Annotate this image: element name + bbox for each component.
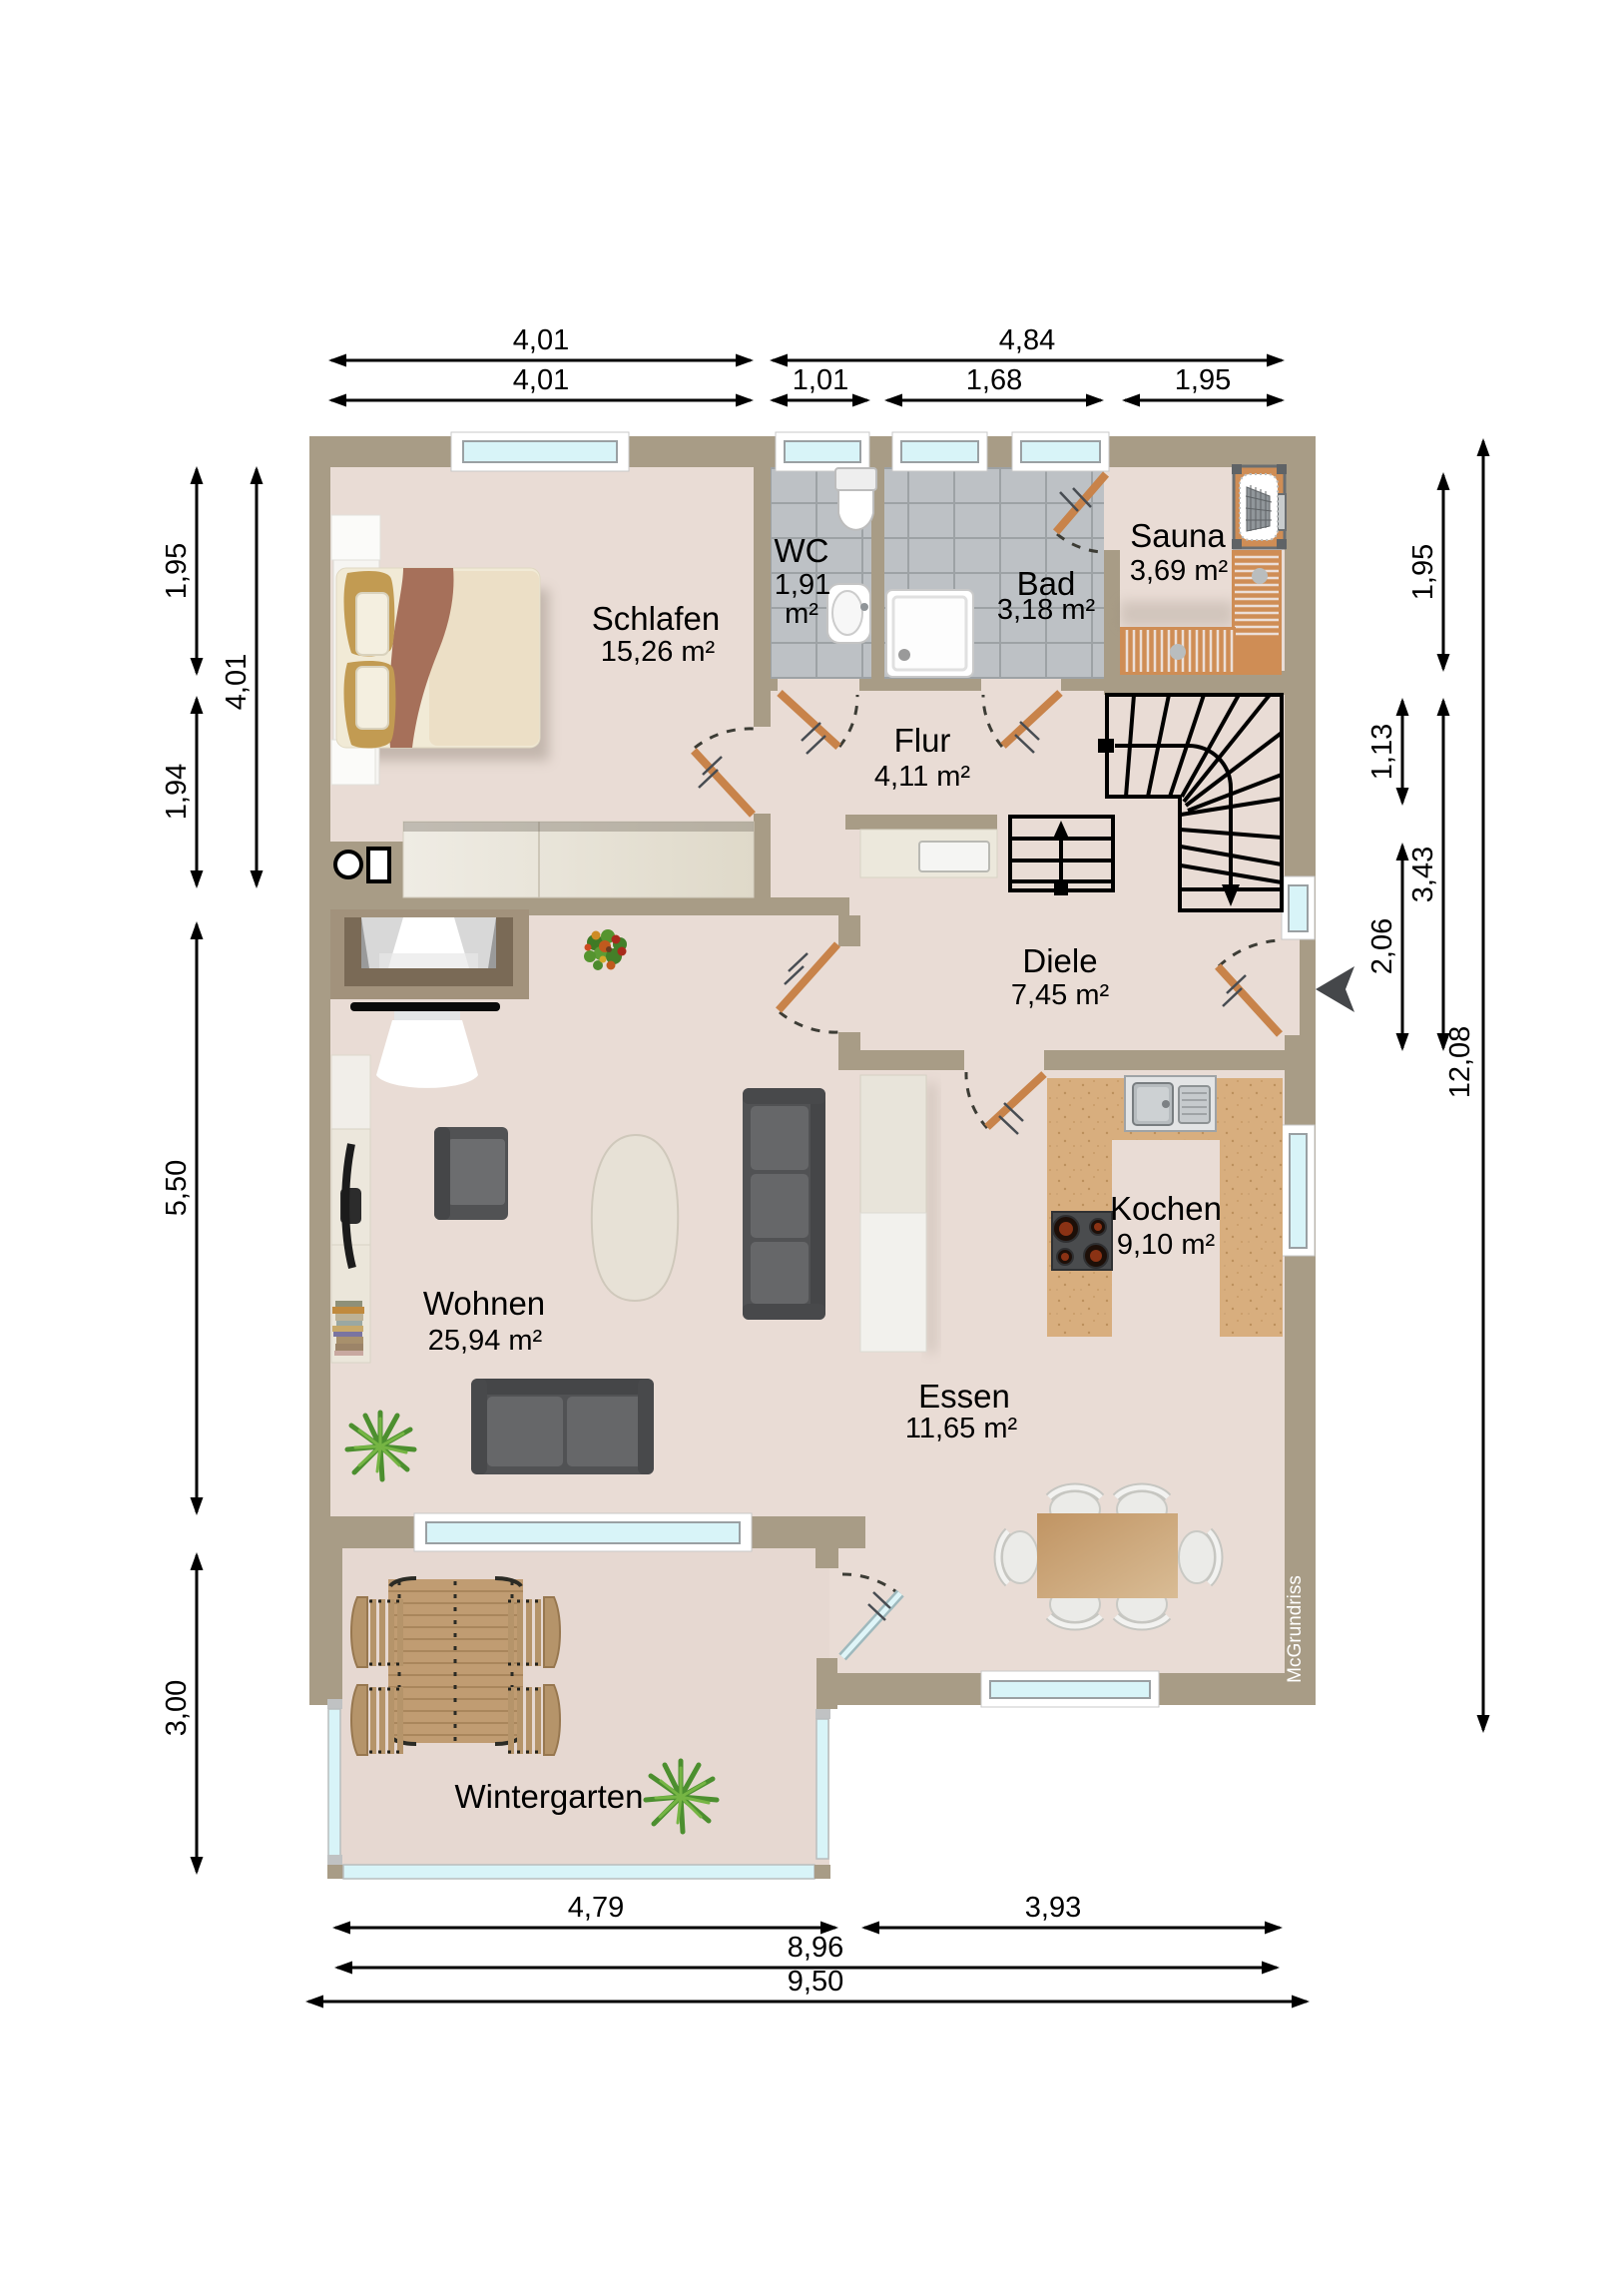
svg-text:Flur: Flur bbox=[894, 722, 951, 759]
svg-text:Sauna: Sauna bbox=[1130, 517, 1226, 554]
svg-text:11,65 m²: 11,65 m² bbox=[905, 1413, 1018, 1444]
svg-text:3,43: 3,43 bbox=[1407, 847, 1439, 902]
svg-text:1,94: 1,94 bbox=[161, 764, 193, 820]
svg-text:m²: m² bbox=[785, 598, 818, 630]
svg-text:3,93: 3,93 bbox=[1025, 1892, 1081, 1924]
svg-text:4,01: 4,01 bbox=[221, 654, 253, 710]
svg-text:McGrundriss: McGrundriss bbox=[1285, 1575, 1306, 1683]
svg-text:Kochen: Kochen bbox=[1110, 1190, 1222, 1227]
svg-text:9,50: 9,50 bbox=[788, 1966, 843, 1998]
svg-text:5,50: 5,50 bbox=[161, 1160, 193, 1216]
svg-text:9,10 m²: 9,10 m² bbox=[1117, 1229, 1216, 1261]
svg-text:4,01: 4,01 bbox=[513, 324, 569, 356]
svg-text:1,95: 1,95 bbox=[161, 543, 193, 599]
svg-text:Wohnen: Wohnen bbox=[423, 1285, 545, 1322]
svg-text:WC: WC bbox=[775, 532, 829, 569]
svg-text:Wintergarten: Wintergarten bbox=[455, 1778, 644, 1815]
svg-text:3,18 m²: 3,18 m² bbox=[997, 594, 1096, 626]
svg-text:1,01: 1,01 bbox=[793, 364, 848, 396]
svg-text:Schlafen: Schlafen bbox=[592, 600, 720, 637]
svg-text:1,91: 1,91 bbox=[775, 569, 830, 601]
svg-text:4,84: 4,84 bbox=[999, 324, 1055, 356]
svg-text:1,13: 1,13 bbox=[1366, 724, 1398, 780]
svg-text:3,69 m²: 3,69 m² bbox=[1130, 555, 1229, 587]
svg-text:12,08: 12,08 bbox=[1444, 1026, 1476, 1099]
svg-text:2,06: 2,06 bbox=[1366, 918, 1398, 974]
svg-text:1,95: 1,95 bbox=[1407, 544, 1439, 600]
svg-text:15,26 m²: 15,26 m² bbox=[601, 636, 716, 668]
svg-text:4,11 m²: 4,11 m² bbox=[874, 761, 971, 793]
svg-text:4,79: 4,79 bbox=[568, 1892, 624, 1924]
svg-text:25,94 m²: 25,94 m² bbox=[428, 1325, 543, 1357]
svg-text:7,45 m²: 7,45 m² bbox=[1011, 979, 1110, 1011]
svg-text:Diele: Diele bbox=[1022, 942, 1097, 979]
svg-text:1,68: 1,68 bbox=[966, 364, 1022, 396]
svg-text:8,96: 8,96 bbox=[788, 1932, 843, 1964]
svg-text:3,00: 3,00 bbox=[161, 1680, 193, 1736]
svg-text:Essen: Essen bbox=[918, 1378, 1010, 1415]
svg-text:1,95: 1,95 bbox=[1175, 364, 1231, 396]
svg-text:4,01: 4,01 bbox=[513, 364, 569, 396]
